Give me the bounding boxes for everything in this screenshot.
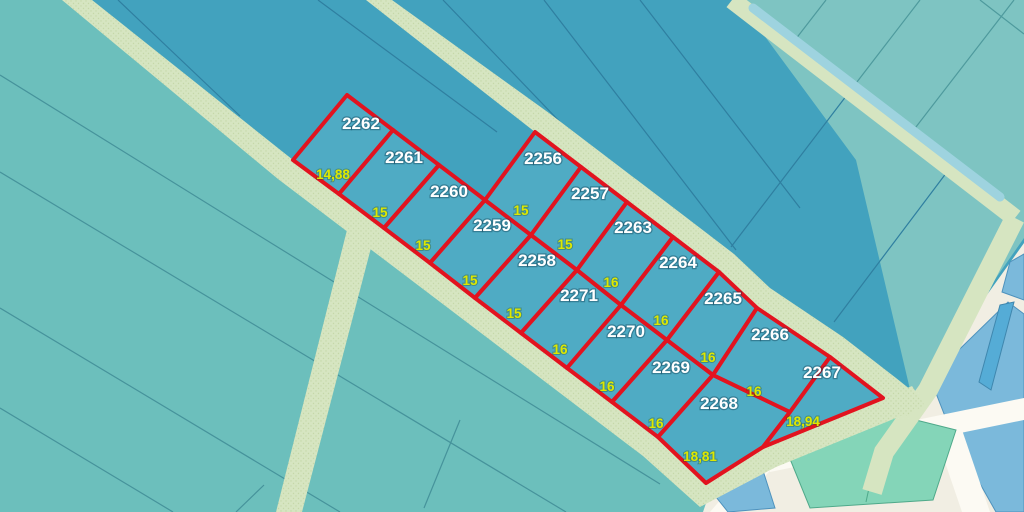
parcel-2269-label: 2269: [652, 358, 690, 377]
measurement-label: 16: [603, 275, 619, 290]
measurement-label: 16: [746, 384, 762, 399]
parcel-2267-label: 2267: [803, 363, 841, 382]
map-viewport[interactable]: 2262 2261 2260 2259 2258 2271 2270 2269 …: [0, 0, 1024, 512]
parcel-2260-label: 2260: [430, 182, 468, 201]
parcel-2263-label: 2263: [614, 218, 652, 237]
parcel-2256-label: 2256: [524, 149, 562, 168]
measurement-label: 18,81: [683, 449, 717, 464]
measurement-label: 16: [648, 416, 664, 431]
parcel-2262-label: 2262: [342, 114, 380, 133]
measurement-label: 15: [462, 273, 478, 288]
measurement-label: 14,88: [316, 167, 350, 182]
measurement-label: 15: [415, 238, 431, 253]
measurement-label: 16: [599, 379, 615, 394]
parcel-2264-label: 2264: [659, 253, 697, 272]
measurement-label: 16: [552, 342, 568, 357]
measurement-label: 15: [372, 205, 388, 220]
measurement-label: 16: [653, 313, 669, 328]
measurement-label: 18,94: [786, 414, 820, 429]
parcel-2265-label: 2265: [704, 289, 742, 308]
parcel-2271-label: 2271: [560, 286, 598, 305]
parcel-2270-label: 2270: [607, 322, 645, 341]
cadastral-map[interactable]: 2262 2261 2260 2259 2258 2271 2270 2269 …: [0, 0, 1024, 512]
parcel-2257-label: 2257: [571, 184, 609, 203]
parcel-2259-label: 2259: [473, 216, 511, 235]
parcel-2266-label: 2266: [751, 325, 789, 344]
measurement-label: 16: [700, 350, 716, 365]
measurement-label: 15: [513, 203, 529, 218]
parcel-2258-label: 2258: [518, 251, 556, 270]
measurement-label: 15: [557, 237, 573, 252]
parcel-2268-label: 2268: [700, 394, 738, 413]
measurement-label: 15: [506, 306, 522, 321]
parcel-2261-label: 2261: [385, 148, 423, 167]
